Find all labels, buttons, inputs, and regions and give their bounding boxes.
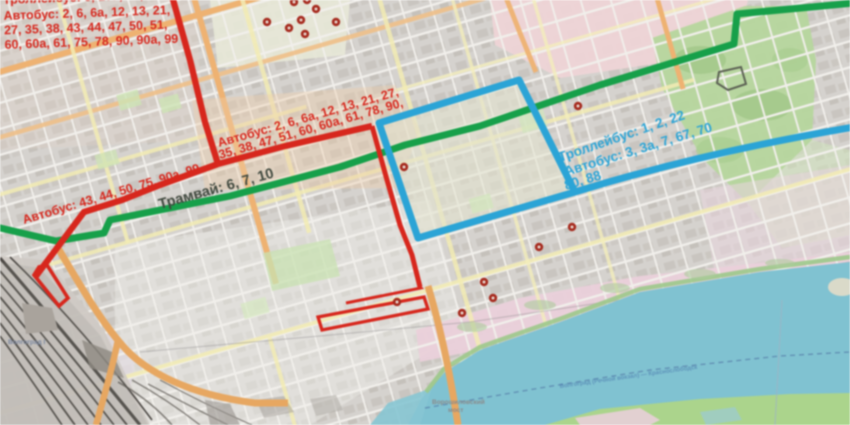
svg-text:Ворошиловский: Ворошиловский [432, 398, 485, 406]
svg-text:Волгоград I: Волгоград I [8, 339, 45, 346]
svg-text:мост: мост [448, 407, 463, 414]
